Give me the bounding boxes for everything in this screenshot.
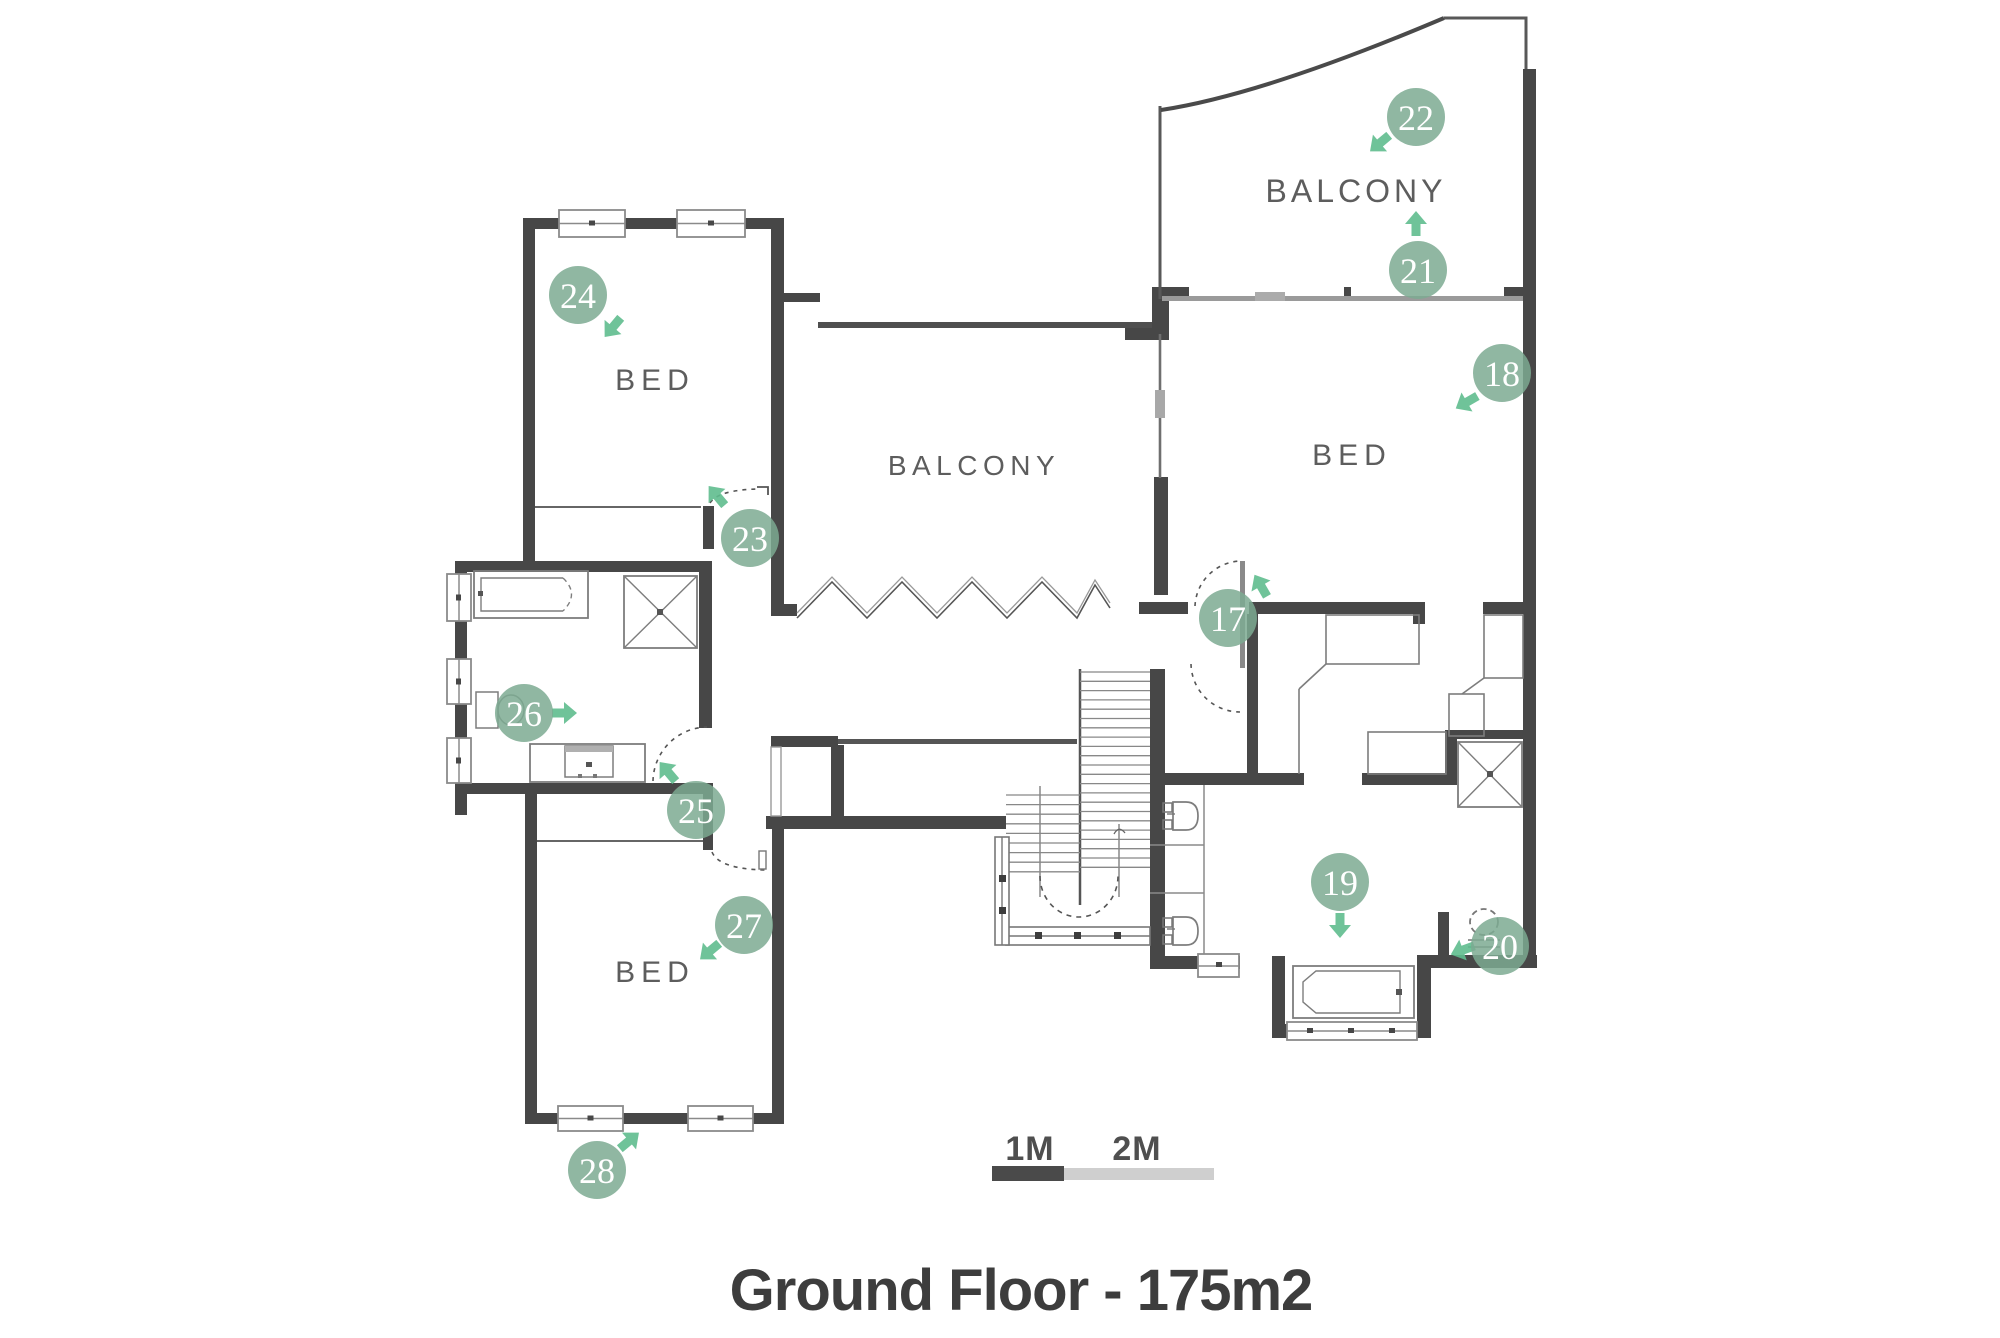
svg-text:25: 25 [678, 791, 714, 831]
svg-text:BALCONY: BALCONY [888, 450, 1060, 481]
svg-text:1M: 1M [1005, 1130, 1054, 1168]
svg-text:BED: BED [1312, 439, 1392, 472]
svg-text:27: 27 [726, 906, 762, 946]
svg-text:Ground Floor - 175m2: Ground Floor - 175m2 [730, 1258, 1313, 1323]
svg-text:24: 24 [560, 276, 596, 316]
svg-text:17: 17 [1210, 599, 1246, 639]
svg-text:21: 21 [1400, 251, 1436, 291]
svg-text:19: 19 [1322, 863, 1358, 903]
svg-text:23: 23 [732, 519, 768, 559]
svg-text:20: 20 [1482, 927, 1518, 967]
svg-text:BED: BED [615, 364, 695, 397]
svg-text:BED: BED [615, 956, 695, 989]
svg-text:26: 26 [506, 694, 542, 734]
svg-text:BALCONY: BALCONY [1266, 173, 1447, 209]
svg-text:22: 22 [1398, 98, 1434, 138]
svg-text:2M: 2M [1112, 1130, 1161, 1168]
svg-text:18: 18 [1484, 354, 1520, 394]
svg-text:28: 28 [579, 1151, 615, 1191]
